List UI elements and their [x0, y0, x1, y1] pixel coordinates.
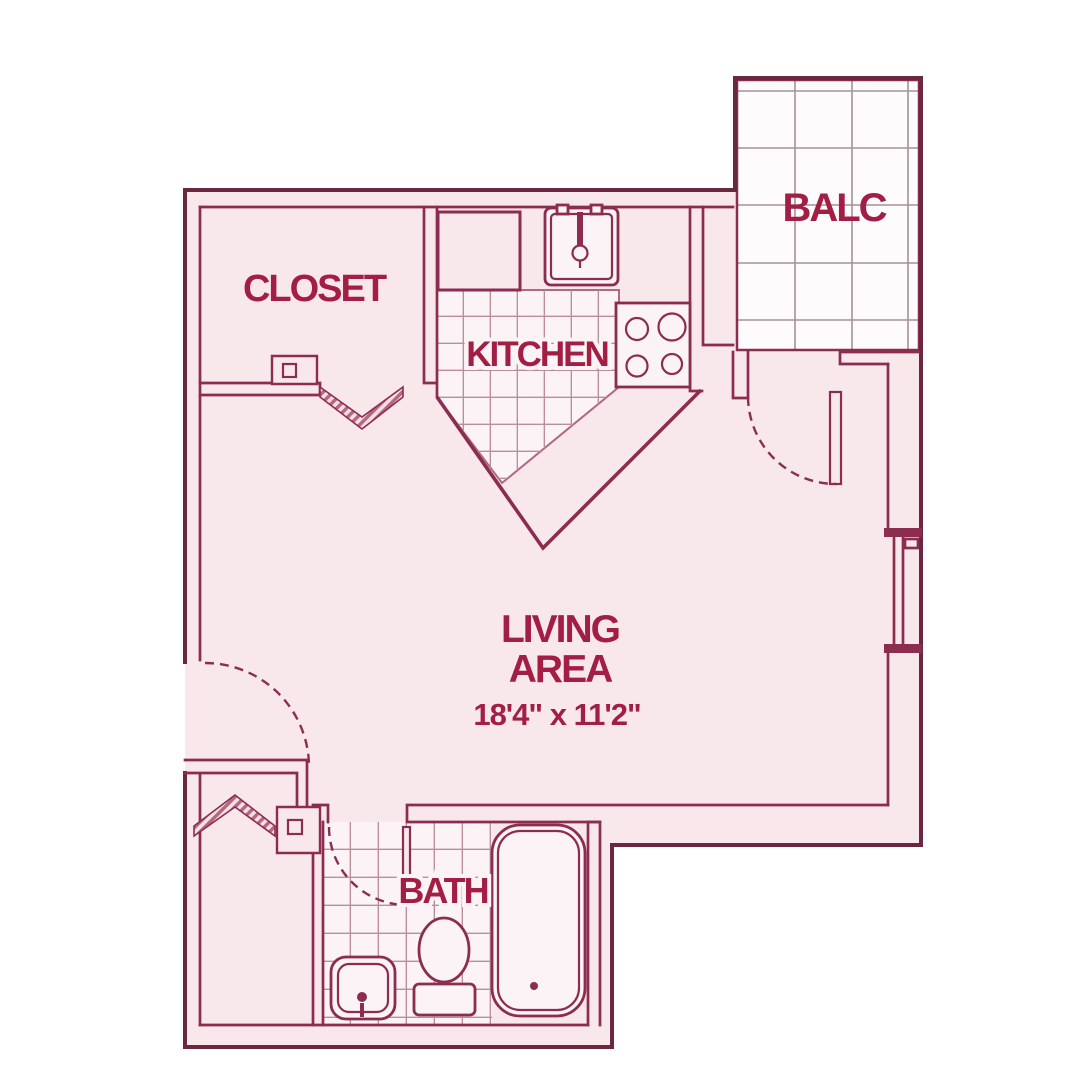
storage-shelf-box: [277, 807, 320, 853]
kitchen-label: KITCHEN: [466, 335, 608, 374]
bathtub-icon: [492, 825, 585, 1016]
floor-plan-canvas: CLOSET KITCHEN BALC LIVING AREA 18'4" x …: [0, 0, 1080, 1080]
closet-shelf-box: [272, 356, 317, 384]
balcony-label: BALC: [782, 186, 886, 230]
living-area-dimensions: 18'4" x 11'2": [473, 697, 640, 732]
floor-plan: CLOSET KITCHEN BALC LIVING AREA 18'4" x …: [0, 0, 1080, 1080]
toilet-icon: [414, 918, 475, 1015]
balcony-door-leaf: [830, 392, 841, 484]
living-area-label-line2: AREA: [509, 648, 613, 691]
bath-label: BATH: [398, 870, 487, 911]
stove-icon: [616, 303, 690, 387]
closet-label: CLOSET: [243, 268, 387, 310]
kitchen-sink-icon: [545, 205, 618, 285]
bath-sink-icon: [331, 957, 395, 1019]
living-area-label-line1: LIVING: [501, 608, 619, 651]
